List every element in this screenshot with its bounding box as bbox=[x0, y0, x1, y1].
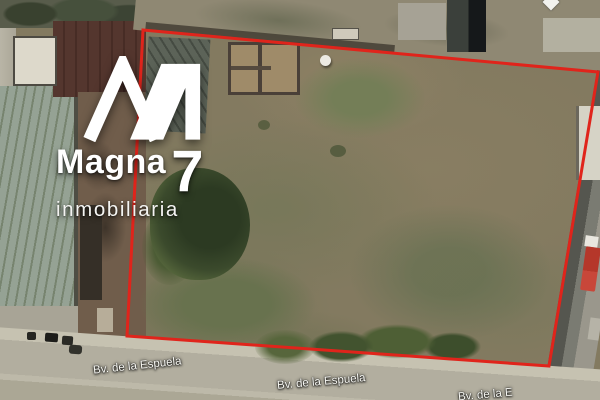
parked-car-4 bbox=[69, 345, 83, 355]
street-trees bbox=[308, 318, 493, 370]
east-white-roof bbox=[576, 106, 600, 180]
logo-number-text: 7 bbox=[171, 147, 203, 196]
water-tank-dot bbox=[320, 55, 331, 66]
magna-m-logo-icon bbox=[82, 56, 202, 142]
small-light-roof bbox=[97, 308, 113, 332]
concrete-pad bbox=[398, 3, 446, 40]
concrete-pad-2 bbox=[543, 18, 600, 52]
white-vehicle bbox=[332, 28, 359, 40]
ruin-inner-wall-2 bbox=[231, 66, 271, 70]
magna7-watermark: Magna 7 inmobiliaria bbox=[56, 56, 203, 222]
grass-patch-north bbox=[295, 58, 425, 138]
white-roof-building bbox=[13, 36, 57, 86]
gray-vehicle-east bbox=[588, 317, 600, 340]
bush bbox=[330, 145, 346, 157]
satellite-photo: Magna 7 inmobiliaria Bv. de la Espuela B… bbox=[0, 0, 600, 400]
bush-2 bbox=[258, 120, 270, 130]
parked-car-1 bbox=[27, 332, 36, 340]
logo-brand-text: Magna bbox=[56, 145, 166, 179]
parked-car-2 bbox=[45, 333, 59, 343]
street-tree-west bbox=[255, 330, 315, 364]
dark-roof-building bbox=[447, 0, 486, 52]
